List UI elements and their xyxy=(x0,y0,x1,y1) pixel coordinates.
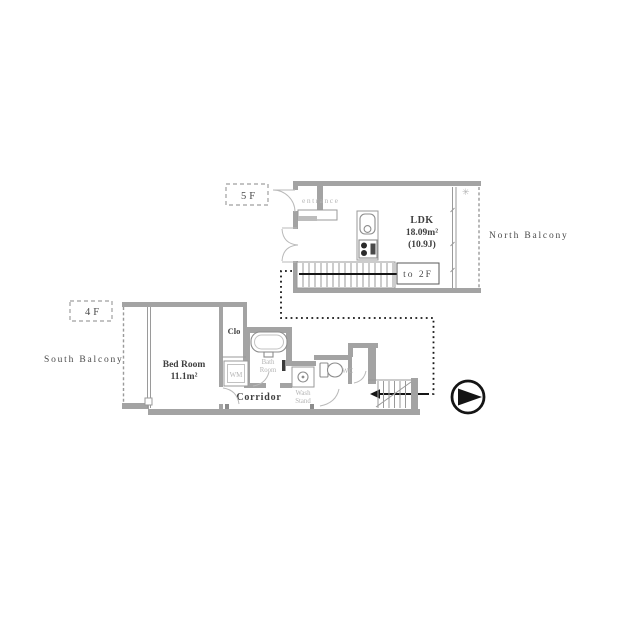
floor-5f: 5F entrance LDK 18.09m² (10.9J) xyxy=(226,181,569,293)
kitchen-drain-icon xyxy=(364,226,371,233)
north-balcony-label: North Balcony xyxy=(489,231,569,241)
stove-burner-icon xyxy=(361,243,367,249)
bath-faucet-icon xyxy=(264,352,273,357)
south-balcony-label: South Balcony xyxy=(44,355,124,365)
closet-label: Clo xyxy=(228,326,241,336)
wall-storage-east xyxy=(368,348,376,384)
bath-fixture-icon xyxy=(282,360,286,371)
bedroom-area-label: 11.1m² xyxy=(171,372,198,382)
corridor-label: Corridor xyxy=(236,392,281,403)
stove-control-icon xyxy=(371,244,376,255)
washstand-label-line2: Stand xyxy=(295,398,311,405)
window-stop-icon xyxy=(145,398,152,405)
wall-bath-bottom-b xyxy=(280,383,292,388)
door-stop-icon xyxy=(310,404,314,409)
wall-stairs-east xyxy=(411,378,418,410)
floor-5f-tag-label: 5F xyxy=(241,191,258,202)
door-stop-icon xyxy=(225,404,229,409)
wall-4f-top xyxy=(122,302,246,307)
entrance-door-arc xyxy=(273,190,295,212)
wall-5f-bottom xyxy=(293,288,481,293)
storage-door-arc xyxy=(354,371,366,383)
bath-label-line1: Bath xyxy=(262,359,275,366)
washing-machine-label: WM xyxy=(230,371,244,379)
toilet-bowl-icon xyxy=(328,363,343,377)
wall-4f-bottom xyxy=(148,409,420,415)
wall-5f-left-b xyxy=(293,211,298,229)
floorplan-canvas: 5F entrance LDK 18.09m² (10.9J) xyxy=(0,0,640,640)
entrance-label: entrance xyxy=(302,196,339,205)
double-door-arc-bottom xyxy=(282,245,298,261)
wall-bedroom-east-stub xyxy=(219,404,223,409)
entrance-step-wall xyxy=(298,216,317,221)
wall-washstand-top xyxy=(286,361,316,366)
vent-mark-icon: ✳ xyxy=(462,187,470,197)
floorplan-drawing: 5F entrance LDK 18.09m² (10.9J) xyxy=(0,0,640,640)
wall-wc-top xyxy=(314,355,352,360)
washstand-drain-icon xyxy=(302,376,305,379)
washstand-label-line1: Wash xyxy=(296,390,312,397)
bedroom-label: Bed Room xyxy=(163,360,206,370)
to-2f-label: to 2F xyxy=(403,270,433,280)
ldk-label: LDK xyxy=(410,215,433,226)
ldk-tatami-label: (10.9J) xyxy=(408,239,436,250)
wc-label: WC xyxy=(342,367,354,375)
wall-5f-left-a xyxy=(293,181,298,190)
direction-compass-icon xyxy=(452,381,484,413)
double-door-arc-top xyxy=(282,229,298,245)
stove-burner-icon xyxy=(361,250,367,256)
wc-door-arc xyxy=(320,389,339,406)
wall-storage-west-stub xyxy=(348,343,353,357)
wall-bedroom-east xyxy=(219,307,223,387)
toilet-tank-icon xyxy=(320,363,328,377)
ldk-area-label: 18.09m² xyxy=(406,228,438,238)
floor-4f-tag-label: 4F xyxy=(85,307,102,318)
wall-5f-top xyxy=(293,181,481,186)
